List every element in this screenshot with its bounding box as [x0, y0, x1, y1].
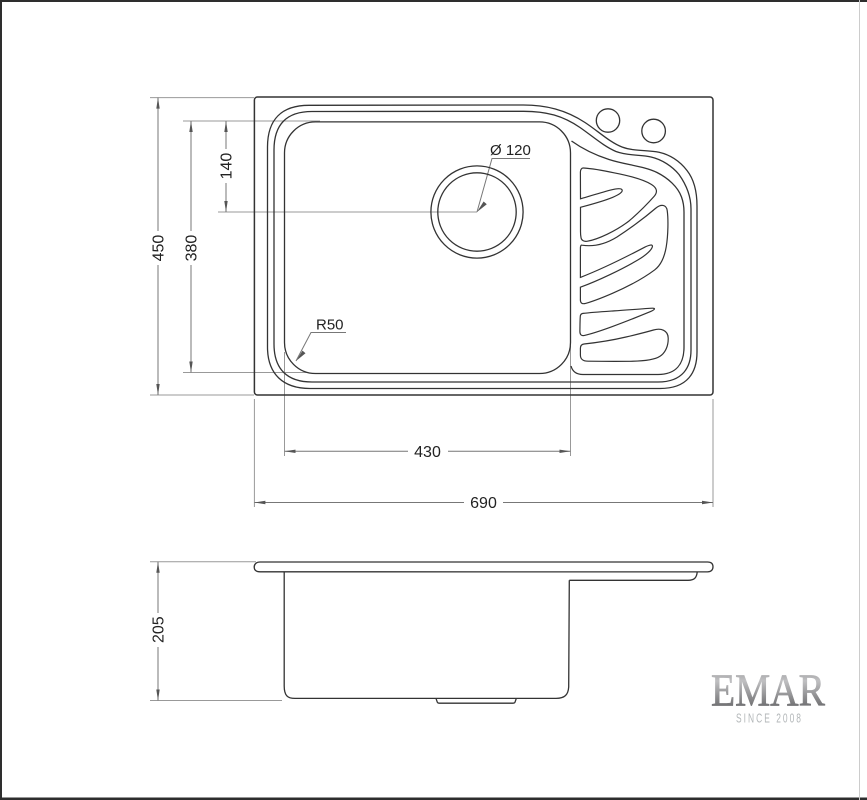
- svg-text:205: 205: [151, 616, 168, 643]
- svg-text:450: 450: [151, 235, 168, 262]
- svg-text:380: 380: [184, 235, 201, 262]
- svg-text:SINCE 2008: SINCE 2008: [736, 712, 803, 726]
- svg-text:140: 140: [219, 153, 236, 180]
- svg-text:430: 430: [414, 444, 441, 461]
- svg-text:690: 690: [470, 495, 497, 512]
- svg-text:R50: R50: [316, 317, 344, 334]
- svg-text:EMAR: EMAR: [711, 665, 825, 716]
- svg-text:Ø 120: Ø 120: [490, 142, 531, 159]
